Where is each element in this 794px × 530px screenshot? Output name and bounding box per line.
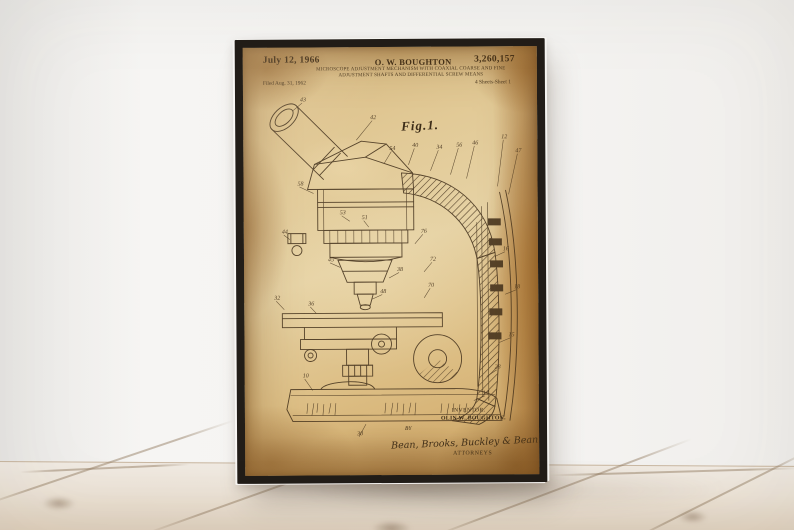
ref-leader-line	[497, 140, 503, 187]
ref-numeral: 70	[428, 283, 434, 289]
product-photo-scene: July 12, 1966 O. W. BOUGHTON 3,260,157 M…	[0, 0, 794, 530]
wood-knot	[678, 510, 708, 523]
wood-knot	[42, 496, 76, 510]
ref-numeral: 51	[362, 215, 368, 221]
ref-leader-line	[424, 262, 432, 272]
floor-plank-seam	[20, 463, 190, 472]
ref-leader-line	[415, 234, 423, 244]
ref-leader-line	[389, 272, 399, 278]
ref-numeral: 53	[340, 210, 346, 216]
ref-numeral: 12	[501, 134, 507, 140]
attorneys-label: ATTORNEYS	[453, 450, 492, 456]
ref-numeral: 44	[282, 229, 288, 236]
ref-numeral: 45	[328, 256, 334, 263]
ref-leader-line	[424, 288, 430, 298]
ref-leader-line	[356, 121, 372, 141]
ref-leader-line	[508, 154, 517, 195]
ref-numeral: 46	[472, 139, 478, 146]
patent-poster: July 12, 1966 O. W. BOUGHTON 3,260,157 M…	[243, 46, 540, 476]
ref-leader-line	[450, 148, 458, 175]
ref-numeral: 32	[273, 296, 280, 302]
ref-leader-line	[300, 187, 314, 194]
microscope-patent-drawing: 4342544034564612475853514445483832367672…	[243, 46, 540, 476]
ref-numeral: 43	[300, 97, 306, 104]
ref-numeral: 56	[456, 143, 462, 149]
ref-leader-line	[342, 216, 350, 222]
wood-knot	[372, 520, 412, 530]
ref-leader-line	[284, 235, 290, 240]
ref-numeral: 36	[307, 301, 314, 307]
ref-numeral: 10	[303, 374, 309, 380]
ref-leader-line	[408, 148, 414, 165]
by-label: BY	[405, 426, 412, 432]
ref-numeral: 40	[412, 142, 418, 149]
ref-leader-line	[276, 301, 284, 310]
ref-numeral: 18	[514, 284, 520, 290]
ref-leader-line	[384, 151, 391, 163]
ref-numeral: 42	[370, 114, 376, 121]
inventor-caption: INVENTOR.	[452, 407, 486, 413]
ref-numeral: 28	[495, 364, 501, 370]
ref-leader-line	[310, 307, 316, 314]
ref-numeral: 72	[430, 257, 436, 263]
wall	[0, 0, 240, 465]
ref-numeral: 58	[298, 182, 304, 188]
ref-numeral: 16	[503, 246, 509, 252]
ref-leader-line	[495, 252, 505, 257]
ref-numeral: 15	[508, 332, 514, 338]
ref-numeral: 47	[515, 147, 522, 154]
inventor-name: OLIN W. BOUGHTON.	[441, 415, 506, 421]
ref-leader-line	[466, 146, 474, 179]
ref-numeral: 38	[396, 267, 403, 273]
ref-numeral: 76	[421, 229, 427, 235]
ref-leader-line	[364, 221, 369, 228]
ref-numeral: 48	[380, 288, 386, 295]
ref-numeral: 34	[435, 144, 442, 151]
poster-frame: July 12, 1966 O. W. BOUGHTON 3,260,157 M…	[235, 38, 548, 484]
ref-leader-line	[305, 379, 313, 391]
ref-leader-line	[330, 263, 340, 268]
ref-numeral: 54	[389, 145, 395, 152]
ref-numeral: 14	[483, 389, 489, 396]
ref-leader-line	[430, 150, 438, 171]
ref-leader-line	[372, 295, 382, 300]
